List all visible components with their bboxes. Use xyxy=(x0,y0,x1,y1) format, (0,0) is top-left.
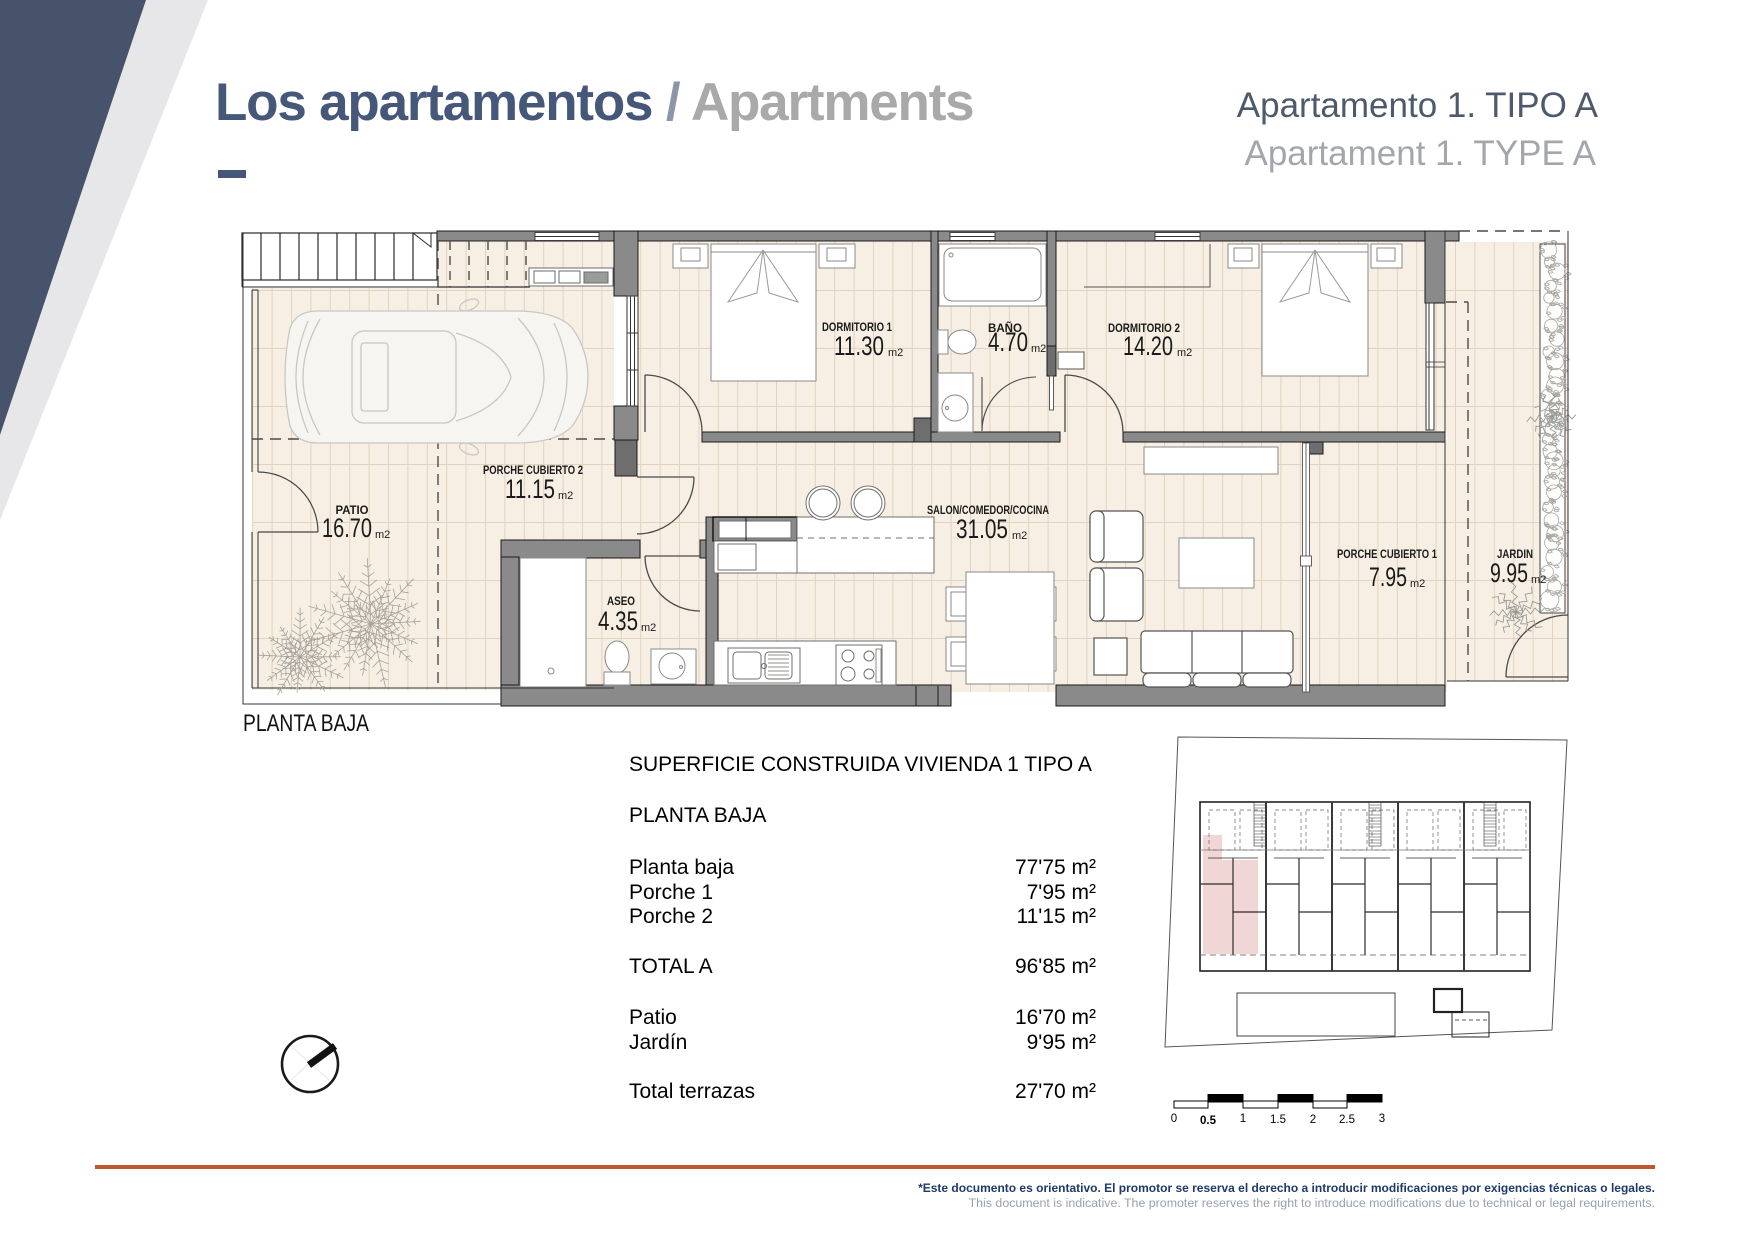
svg-text:0.5: 0.5 xyxy=(1200,1115,1217,1127)
svg-text:m2: m2 xyxy=(641,622,656,634)
svg-text:PORCHE CUBIERTO 1: PORCHE CUBIERTO 1 xyxy=(1337,547,1437,561)
svg-text:11.15: 11.15 xyxy=(505,474,555,504)
svg-text:14.20: 14.20 xyxy=(1123,331,1173,361)
svg-text:m2: m2 xyxy=(558,490,573,502)
svg-text:m2: m2 xyxy=(888,347,903,359)
svg-text:PLANTA BAJA: PLANTA BAJA xyxy=(243,710,369,737)
svg-text:m2: m2 xyxy=(1531,574,1546,586)
svg-text:1: 1 xyxy=(1240,1113,1246,1125)
svg-text:7.95: 7.95 xyxy=(1369,562,1407,592)
svg-text:11.30: 11.30 xyxy=(834,331,884,361)
svg-text:3: 3 xyxy=(1379,1113,1385,1125)
svg-text:2.5: 2.5 xyxy=(1339,1114,1355,1126)
svg-text:m2: m2 xyxy=(375,529,390,541)
svg-text:0: 0 xyxy=(1171,1113,1177,1125)
svg-text:m2: m2 xyxy=(1410,578,1425,590)
svg-text:16.70: 16.70 xyxy=(322,513,372,543)
svg-text:2: 2 xyxy=(1310,1114,1316,1126)
svg-text:m2: m2 xyxy=(1177,347,1192,359)
svg-text:m2: m2 xyxy=(1012,530,1027,542)
svg-text:4.35: 4.35 xyxy=(598,606,638,636)
svg-text:1.5: 1.5 xyxy=(1270,1114,1286,1126)
svg-text:31.05: 31.05 xyxy=(956,514,1008,544)
svg-text:9.95: 9.95 xyxy=(1490,558,1528,588)
svg-text:m2: m2 xyxy=(1031,343,1046,355)
svg-text:4.70: 4.70 xyxy=(988,327,1028,357)
